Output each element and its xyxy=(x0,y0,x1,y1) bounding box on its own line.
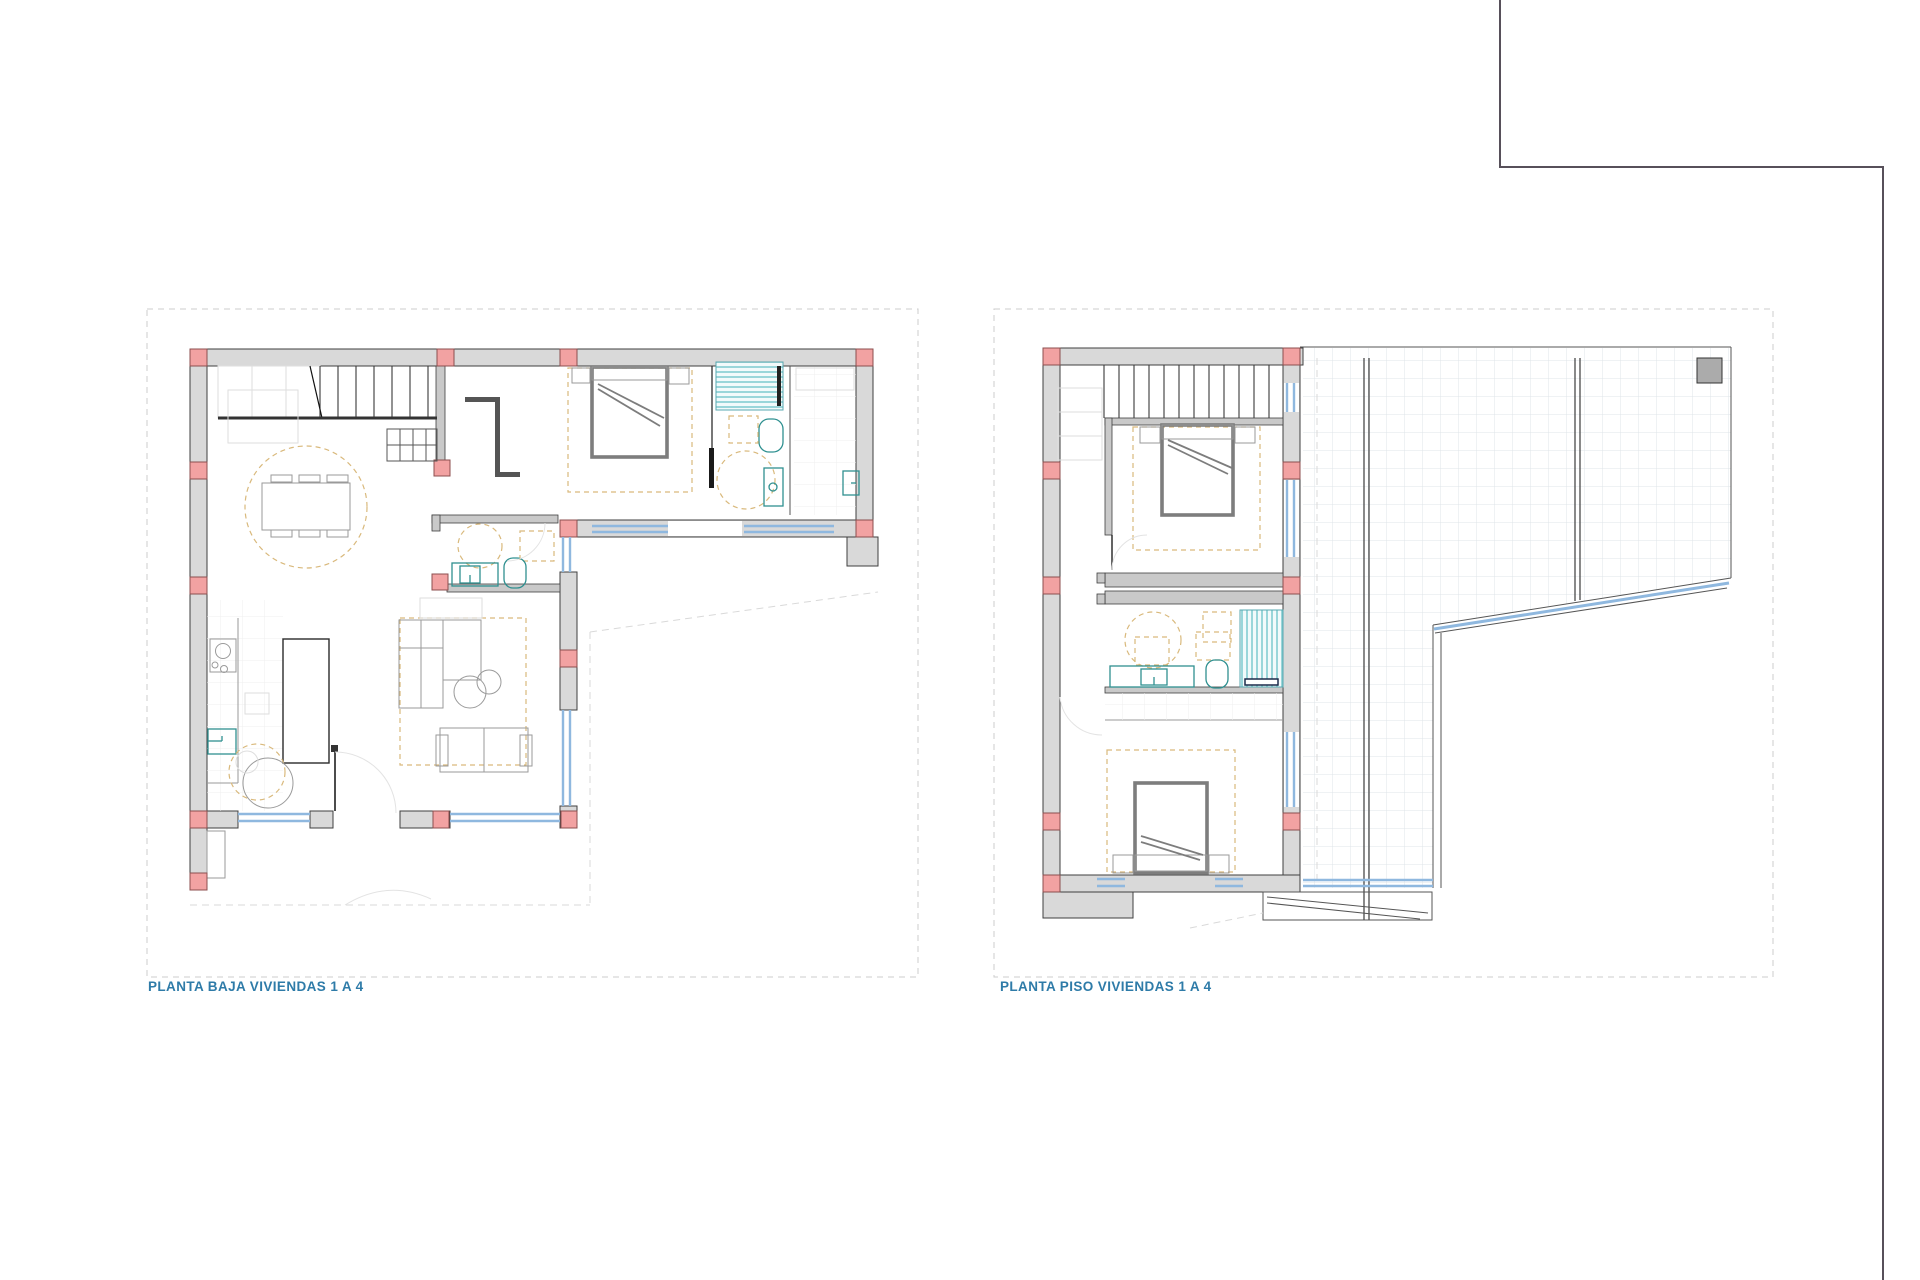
kitchen-island-icon xyxy=(283,639,329,763)
winder-steps xyxy=(387,429,437,461)
dining-table-icon xyxy=(245,446,367,568)
ground-floor-label: PLANTA BAJA VIVIENDAS 1 A 4 xyxy=(148,979,364,994)
staircase-icon xyxy=(218,366,437,461)
upper-bedroom-south xyxy=(1107,750,1235,873)
ground-walls xyxy=(190,349,878,890)
vanity-icon xyxy=(1110,666,1194,687)
toilet-icon xyxy=(1206,660,1228,688)
double-bed-icon xyxy=(1140,425,1255,515)
shower-icon xyxy=(716,362,783,410)
floor-plans-canvas: PLANTA BAJA VIVIENDAS 1 A 4 PLANTA PISO … xyxy=(0,0,1920,1280)
pouf-icon xyxy=(477,670,501,694)
vanity-icon xyxy=(452,563,498,586)
roof-terrace xyxy=(1300,347,1731,920)
upper-bedroom-north xyxy=(1112,425,1260,570)
ground-columns xyxy=(190,349,873,890)
sheet-border-line xyxy=(1500,0,1883,1280)
living-room xyxy=(399,598,532,772)
double-bed-icon xyxy=(1113,783,1229,873)
toilet-icon xyxy=(504,558,526,588)
ensuite-bathroom xyxy=(716,362,783,509)
entry-door-icon xyxy=(331,745,396,813)
pouf-icon xyxy=(454,676,486,708)
upper-bathroom xyxy=(1060,610,1283,735)
corridor-tiles xyxy=(1105,693,1283,720)
ground-bedroom xyxy=(568,367,692,492)
closet-wall xyxy=(465,397,520,477)
skylight-icon xyxy=(1697,358,1722,383)
toilet-icon xyxy=(759,419,783,452)
l-sofa-icon xyxy=(399,620,481,708)
double-bed-icon xyxy=(572,367,689,457)
utility-room xyxy=(794,367,859,515)
shower-drain xyxy=(1245,679,1278,685)
upper-floor-plan xyxy=(1043,347,1731,928)
balcony-ramp-icon xyxy=(1190,892,1432,928)
drawing-sheet: PLANTA BAJA VIVIENDAS 1 A 4 PLANTA PISO … xyxy=(0,0,1920,1280)
kitchen xyxy=(207,600,329,811)
shower-icon xyxy=(1240,610,1283,687)
ground-floor-plan xyxy=(190,349,878,905)
upper-floor-label: PLANTA PISO VIVIENDAS 1 A 4 xyxy=(1000,979,1212,994)
guest-bathroom xyxy=(452,523,554,588)
